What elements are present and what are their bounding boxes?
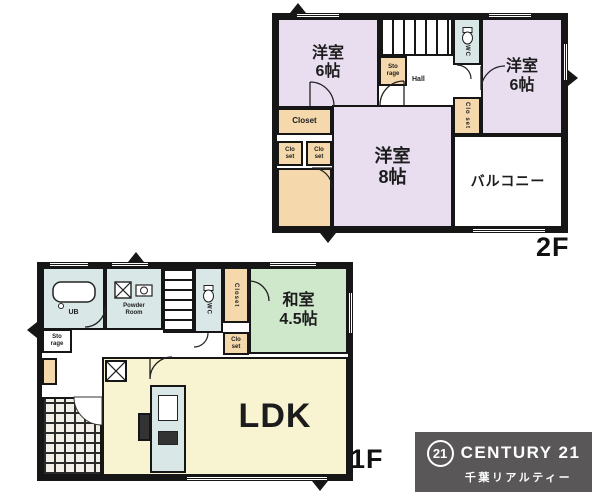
room-label: 洋室 bbox=[506, 58, 538, 76]
ldk-label: LDK bbox=[239, 397, 312, 436]
toilet-icon bbox=[202, 285, 215, 303]
kitchen-sink bbox=[158, 395, 178, 421]
room-2f-east-6jo: 洋室 6帖 bbox=[481, 18, 563, 135]
wall-marker bbox=[320, 233, 336, 243]
kitchen-counter bbox=[150, 385, 186, 473]
room-1f-washitsu: 和室 4.5帖 bbox=[249, 267, 348, 354]
closet-1f-vertical: Closet bbox=[223, 267, 249, 323]
century21-logo: 21 CENTURY 21 千葉リアルティー bbox=[415, 432, 592, 492]
badge-number: 21 bbox=[433, 446, 447, 461]
wall-marker bbox=[312, 481, 328, 491]
wall-marker bbox=[290, 3, 306, 13]
storage-label: Sto rage bbox=[381, 64, 405, 77]
toilet-icon bbox=[461, 27, 474, 45]
window bbox=[297, 13, 339, 18]
powder-label: Powder Room bbox=[107, 303, 161, 316]
walkin-closet-2f bbox=[277, 168, 332, 228]
closet-2f: Closet bbox=[277, 108, 332, 135]
wall-marker bbox=[27, 322, 37, 338]
floor-2f-plan: 洋室 6帖 Sto rage Hall WC 洋室 6帖 Clo set 洋室 … bbox=[272, 13, 568, 233]
window bbox=[473, 228, 545, 233]
closet-label: Closet bbox=[233, 283, 239, 307]
washer-pan-icon bbox=[105, 360, 127, 382]
storage-1f: Sto rage bbox=[42, 329, 72, 353]
stairs-2f bbox=[379, 18, 453, 56]
floorplan-image: 洋室 6帖 Sto rage Hall WC 洋室 6帖 Clo set 洋室 … bbox=[0, 0, 600, 497]
toilet-2f: WC bbox=[453, 18, 481, 65]
closet-label: Clo set bbox=[279, 147, 301, 160]
floor-1f-label: 1F bbox=[350, 444, 384, 475]
window bbox=[489, 13, 531, 18]
room-label: 和室 bbox=[282, 292, 314, 310]
balcony: バルコニー bbox=[453, 135, 563, 228]
window bbox=[50, 262, 88, 267]
floor-2f-label: 2F bbox=[536, 232, 570, 263]
closet-label: Clo set bbox=[464, 102, 470, 129]
room-size: 6帖 bbox=[510, 77, 535, 95]
hall-label: Hall bbox=[412, 76, 425, 83]
room-label: 洋室 bbox=[375, 146, 411, 167]
closet-1f-hall bbox=[42, 358, 57, 385]
bathroom-1f: UB bbox=[42, 267, 105, 330]
window bbox=[270, 262, 316, 267]
wall-marker bbox=[128, 252, 144, 262]
storage-2f: Sto rage bbox=[379, 56, 407, 86]
closet-2f-vertical: Clo set bbox=[453, 97, 481, 135]
window bbox=[187, 476, 327, 481]
kitchen-stove bbox=[158, 431, 178, 445]
window bbox=[563, 44, 568, 80]
wc-label: WC bbox=[206, 303, 212, 315]
bathtub-icon bbox=[52, 281, 96, 309]
balcony-label: バルコニー bbox=[471, 173, 546, 189]
brand-name: CENTURY 21 bbox=[461, 443, 581, 463]
room-size: 8帖 bbox=[378, 167, 406, 188]
room-2f-west-6jo: 洋室 6帖 bbox=[277, 18, 379, 108]
closet-2f-small-1: Clo set bbox=[277, 141, 303, 166]
room-label: 洋室 bbox=[312, 45, 344, 63]
toilet-1f: WC bbox=[194, 267, 223, 333]
refrigerator-space bbox=[138, 413, 151, 441]
closet-1f-small: Clo set bbox=[223, 332, 249, 355]
wall-marker bbox=[568, 70, 578, 86]
floor-1f-plan: UB Powder Room WC Closet 和室 4.5帖 bbox=[37, 262, 353, 481]
closet-label: Clo set bbox=[225, 337, 247, 350]
entrance-genkan bbox=[42, 397, 102, 476]
powder-room-1f: Powder Room bbox=[105, 267, 163, 330]
bath-label: UB bbox=[68, 309, 78, 317]
closet-label: Clo set bbox=[308, 147, 330, 160]
century21-badge-icon: 21 bbox=[427, 440, 454, 467]
window bbox=[348, 293, 353, 333]
stairs-1f bbox=[163, 267, 194, 333]
closet-2f-small-2: Clo set bbox=[306, 141, 332, 166]
washer-and-sink-icon bbox=[114, 281, 154, 303]
wc-label: WC bbox=[464, 45, 470, 57]
agency-name: 千葉リアルティー bbox=[435, 469, 572, 485]
window bbox=[112, 262, 148, 267]
closet-label: Closet bbox=[292, 117, 316, 126]
room-size: 4.5帖 bbox=[279, 311, 317, 329]
storage-label: Sto rage bbox=[44, 334, 70, 347]
room-2f-south-8jo: 洋室 8帖 bbox=[332, 105, 453, 228]
room-size: 6帖 bbox=[316, 63, 341, 81]
